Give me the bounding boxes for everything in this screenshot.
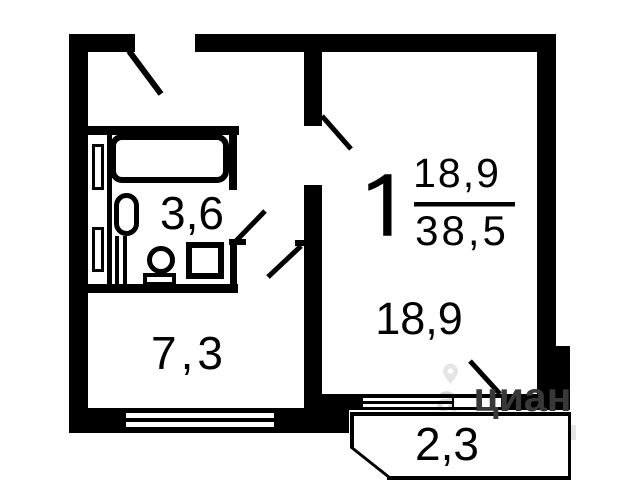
- svg-text:18,9: 18,9: [413, 150, 501, 196]
- svg-text:7,3: 7,3: [151, 327, 227, 379]
- svg-text:18,9: 18,9: [375, 293, 463, 344]
- svg-text:циан: циан: [474, 374, 572, 420]
- svg-text:3,6: 3,6: [160, 187, 224, 239]
- svg-text:2,3: 2,3: [415, 418, 479, 470]
- svg-text:а: а: [436, 378, 457, 419]
- svg-text:38,5: 38,5: [415, 207, 509, 254]
